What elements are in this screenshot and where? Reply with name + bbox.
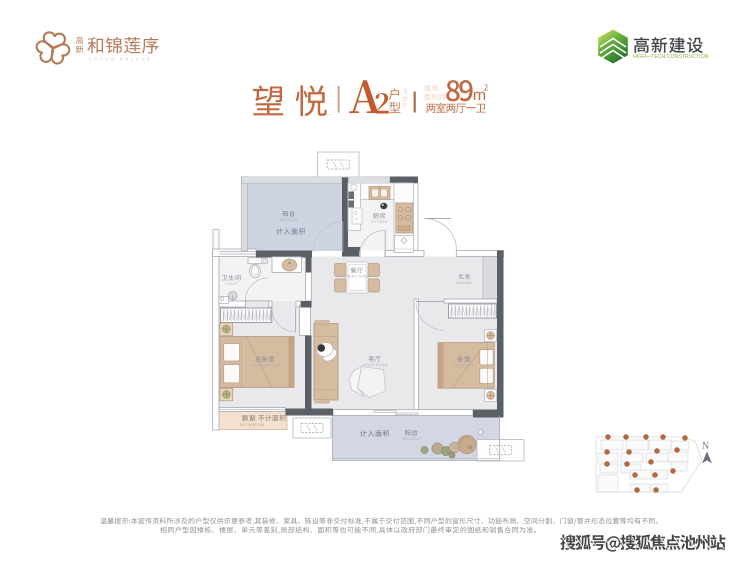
svg-text:HALLWAY: HALLWAY [456,281,474,285]
svg-text:LIVING ROOM: LIVING ROOM [362,363,387,367]
svg-text:HIGH—TECH CONSTRUCTION: HIGH—TECH CONSTRUCTION [633,54,709,60]
svg-text:TOILET: TOILET [225,282,238,286]
svg-text:BALCONY: BALCONY [280,218,298,222]
svg-text:MAIN BEDROOM: MAIN BEDROOM [250,364,280,368]
svg-text:N: N [702,441,709,452]
svg-text:KITCHEN: KITCHEN [371,220,388,224]
svg-text:BALCONY: BALCONY [403,437,421,441]
svg-text:LOTUS PALACE: LOTUS PALACE [89,57,153,63]
svg-text:DINING ROOM: DINING ROOM [344,275,370,279]
svg-text:BAY WINDOW: BAY WINDOW [240,423,265,427]
svg-text:BEDROOM: BEDROOM [454,364,473,368]
